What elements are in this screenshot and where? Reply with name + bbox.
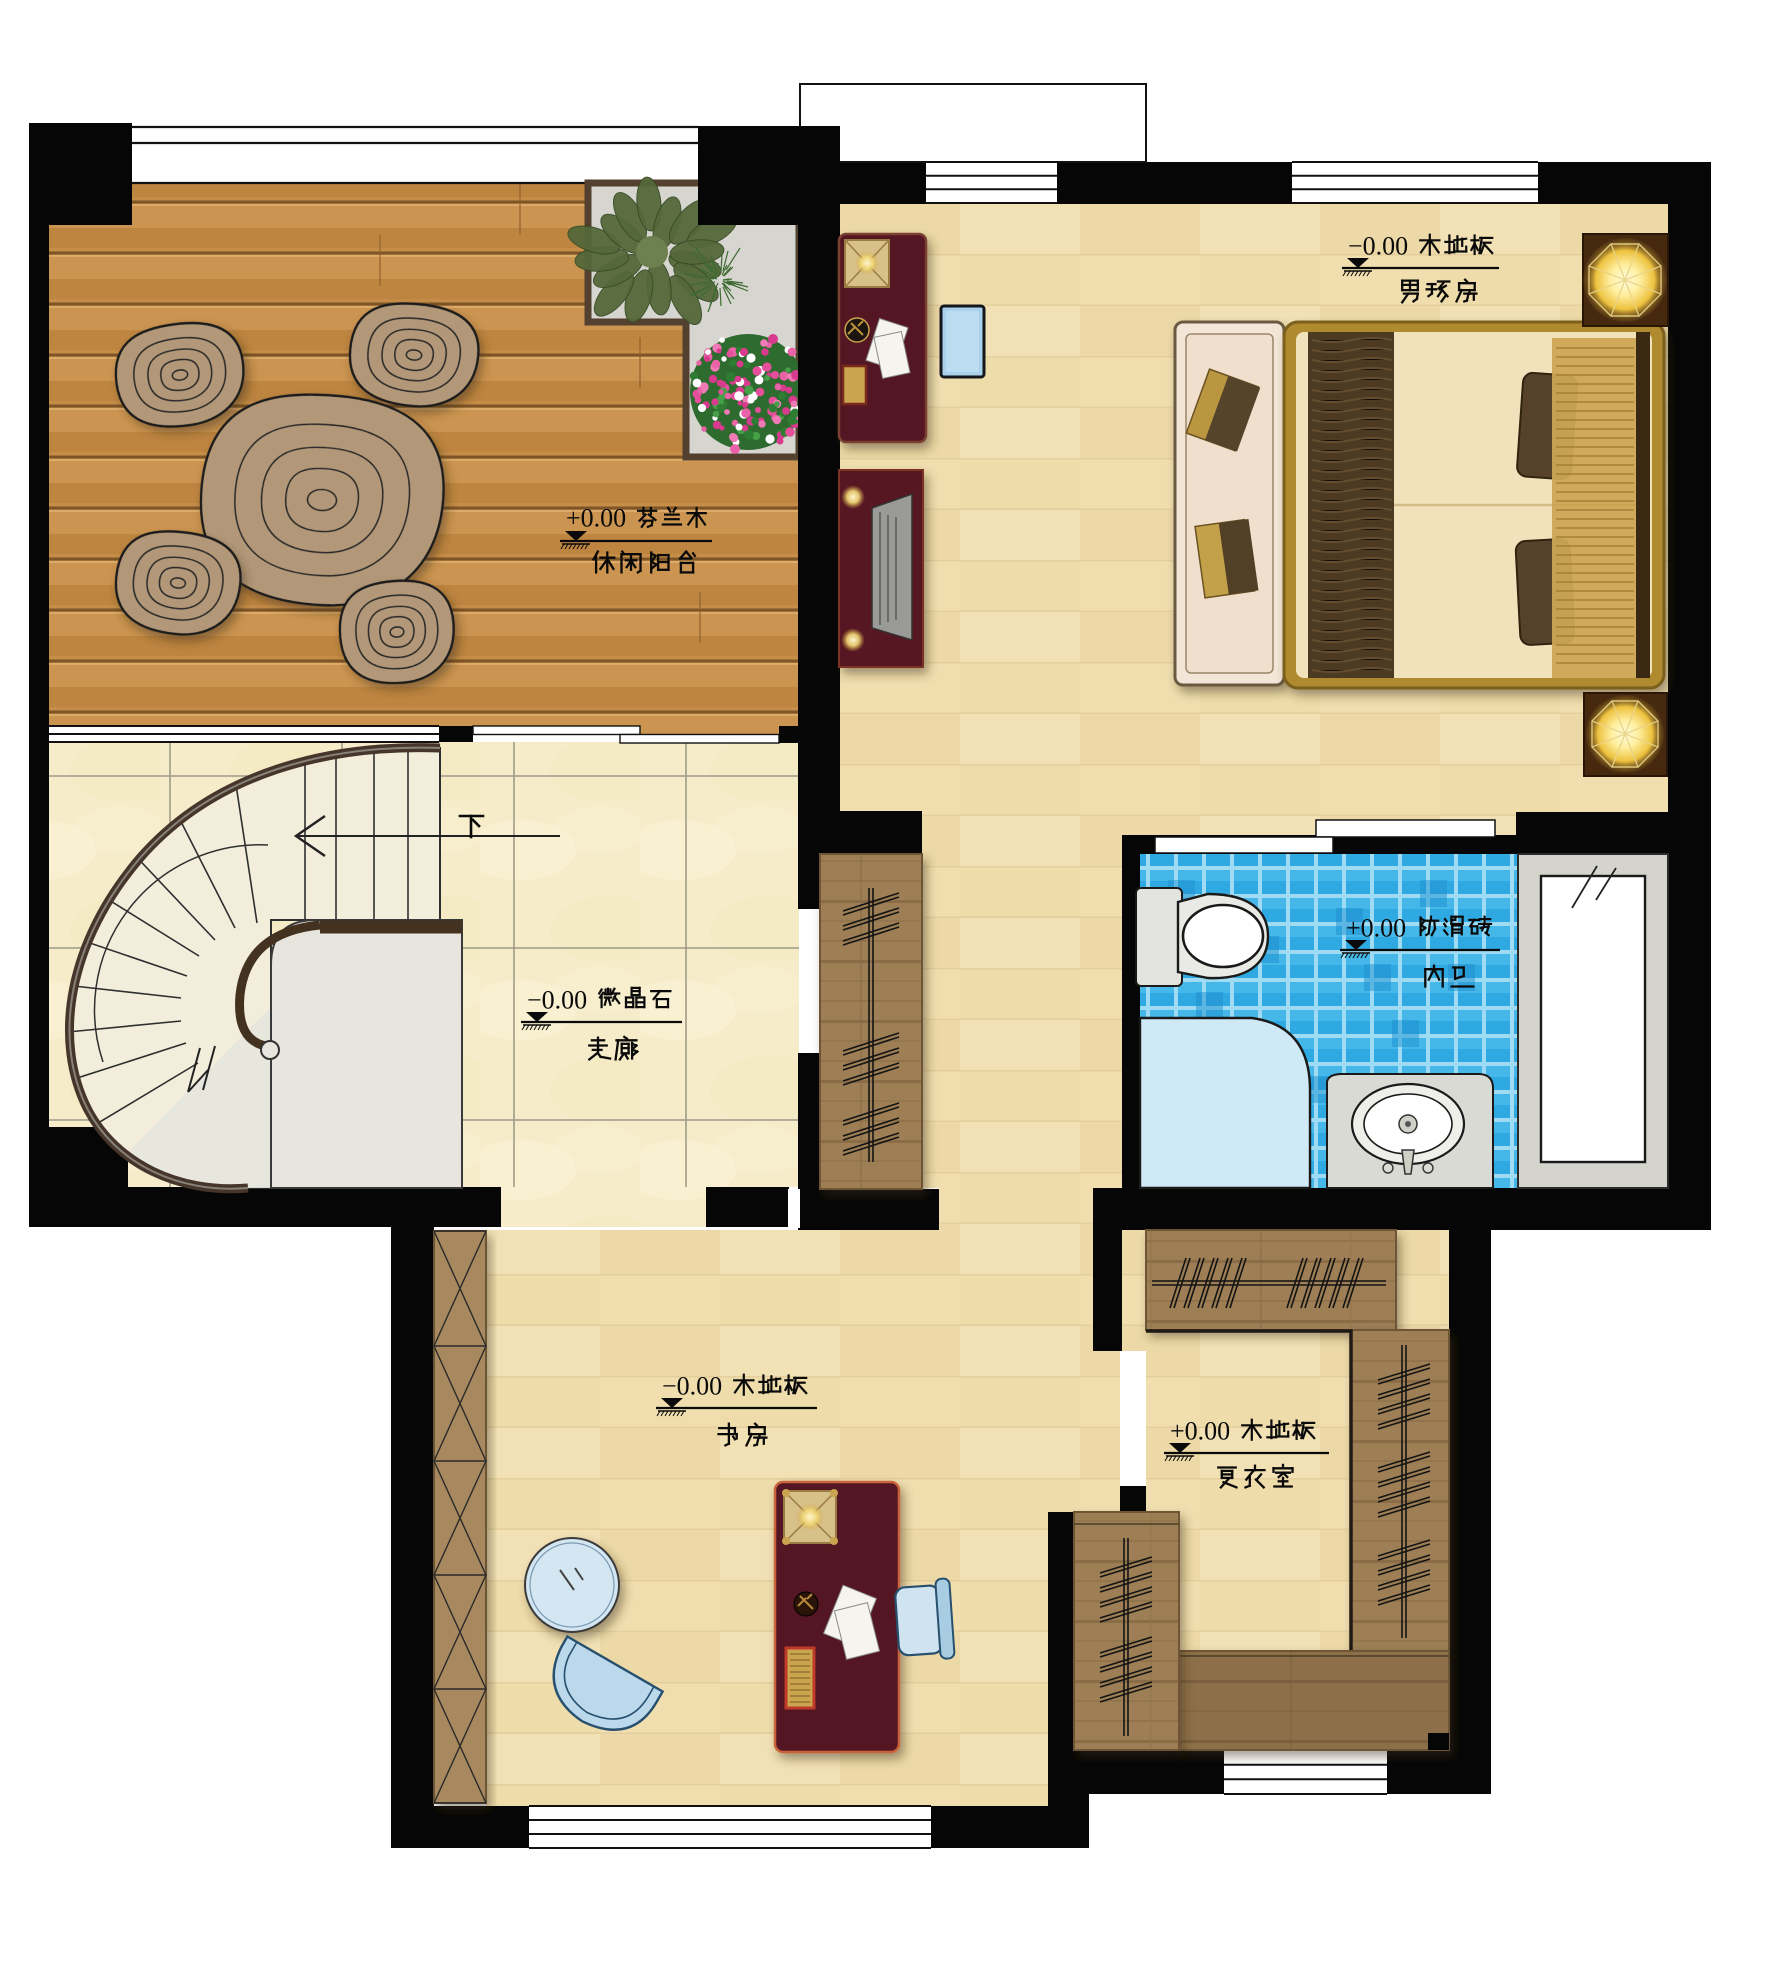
svg-text:+0.00: +0.00 (566, 504, 626, 533)
svg-text:−0.00: −0.00 (527, 986, 587, 1015)
svg-text:−0.00: −0.00 (1348, 232, 1408, 261)
svg-text:+0.00: +0.00 (1170, 1417, 1230, 1446)
svg-text:−0.00: −0.00 (662, 1372, 722, 1401)
svg-text:+0.00: +0.00 (1346, 914, 1406, 943)
